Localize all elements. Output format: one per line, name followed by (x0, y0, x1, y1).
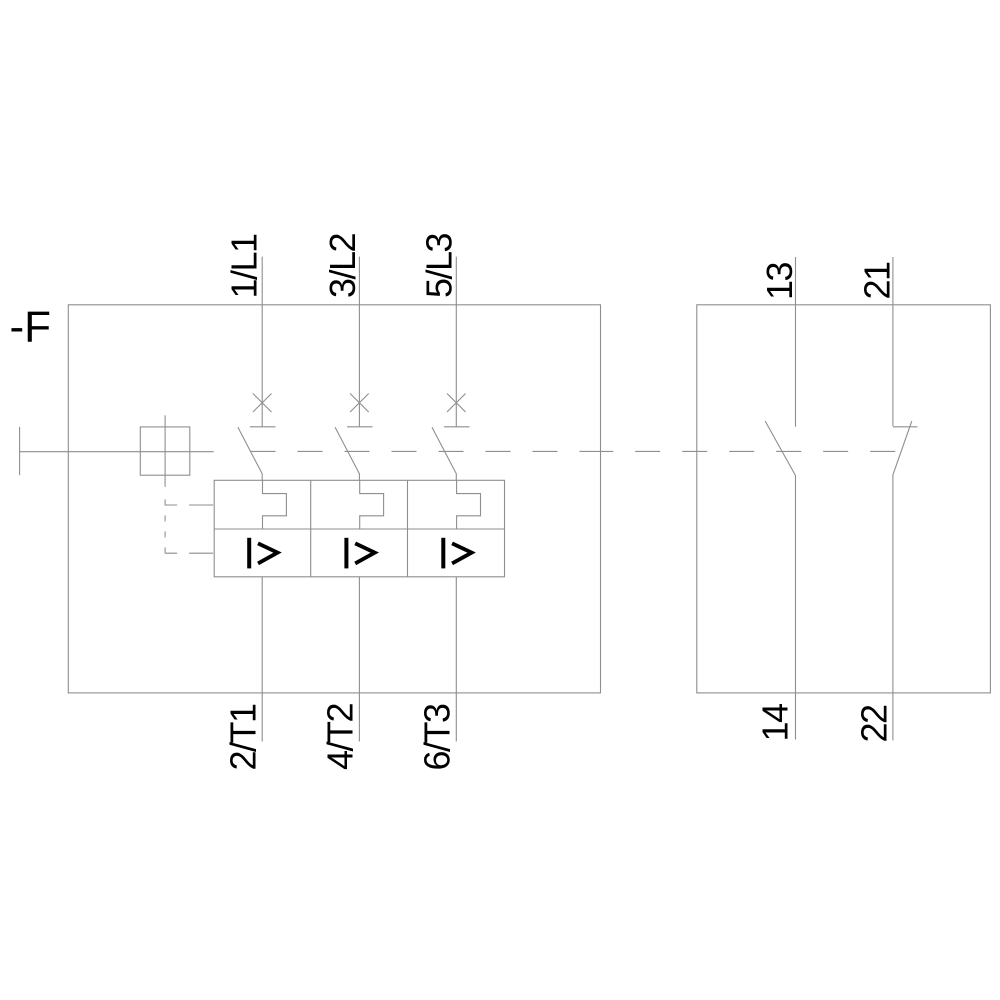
svg-text:1/L1: 1/L1 (223, 234, 264, 299)
svg-text:3/L2: 3/L2 (322, 233, 363, 298)
svg-text:22: 22 (854, 705, 895, 743)
svg-text:4/T2: 4/T2 (320, 703, 361, 770)
svg-text:14: 14 (755, 704, 796, 742)
svg-text:2/T1: 2/T1 (222, 704, 263, 771)
svg-text:6/T3: 6/T3 (417, 704, 458, 771)
svg-text:13: 13 (759, 262, 800, 300)
svg-text:21: 21 (856, 262, 897, 300)
svg-text:-F: -F (10, 303, 52, 352)
svg-text:5/L3: 5/L3 (419, 233, 460, 298)
